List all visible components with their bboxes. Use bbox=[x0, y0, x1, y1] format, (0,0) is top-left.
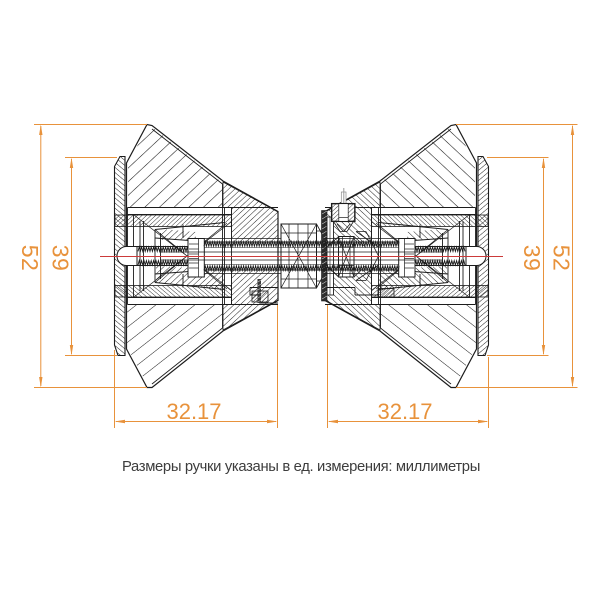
svg-text:52: 52 bbox=[17, 245, 43, 271]
svg-text:52: 52 bbox=[549, 245, 575, 271]
svg-text:32.17: 32.17 bbox=[377, 399, 432, 424]
svg-text:32.17: 32.17 bbox=[166, 399, 221, 424]
svg-text:39: 39 bbox=[47, 245, 73, 271]
svg-text:Размеры ручки указаны в ед. из: Размеры ручки указаны в ед. измерения: м… bbox=[122, 459, 480, 475]
svg-text:39: 39 bbox=[519, 245, 545, 271]
